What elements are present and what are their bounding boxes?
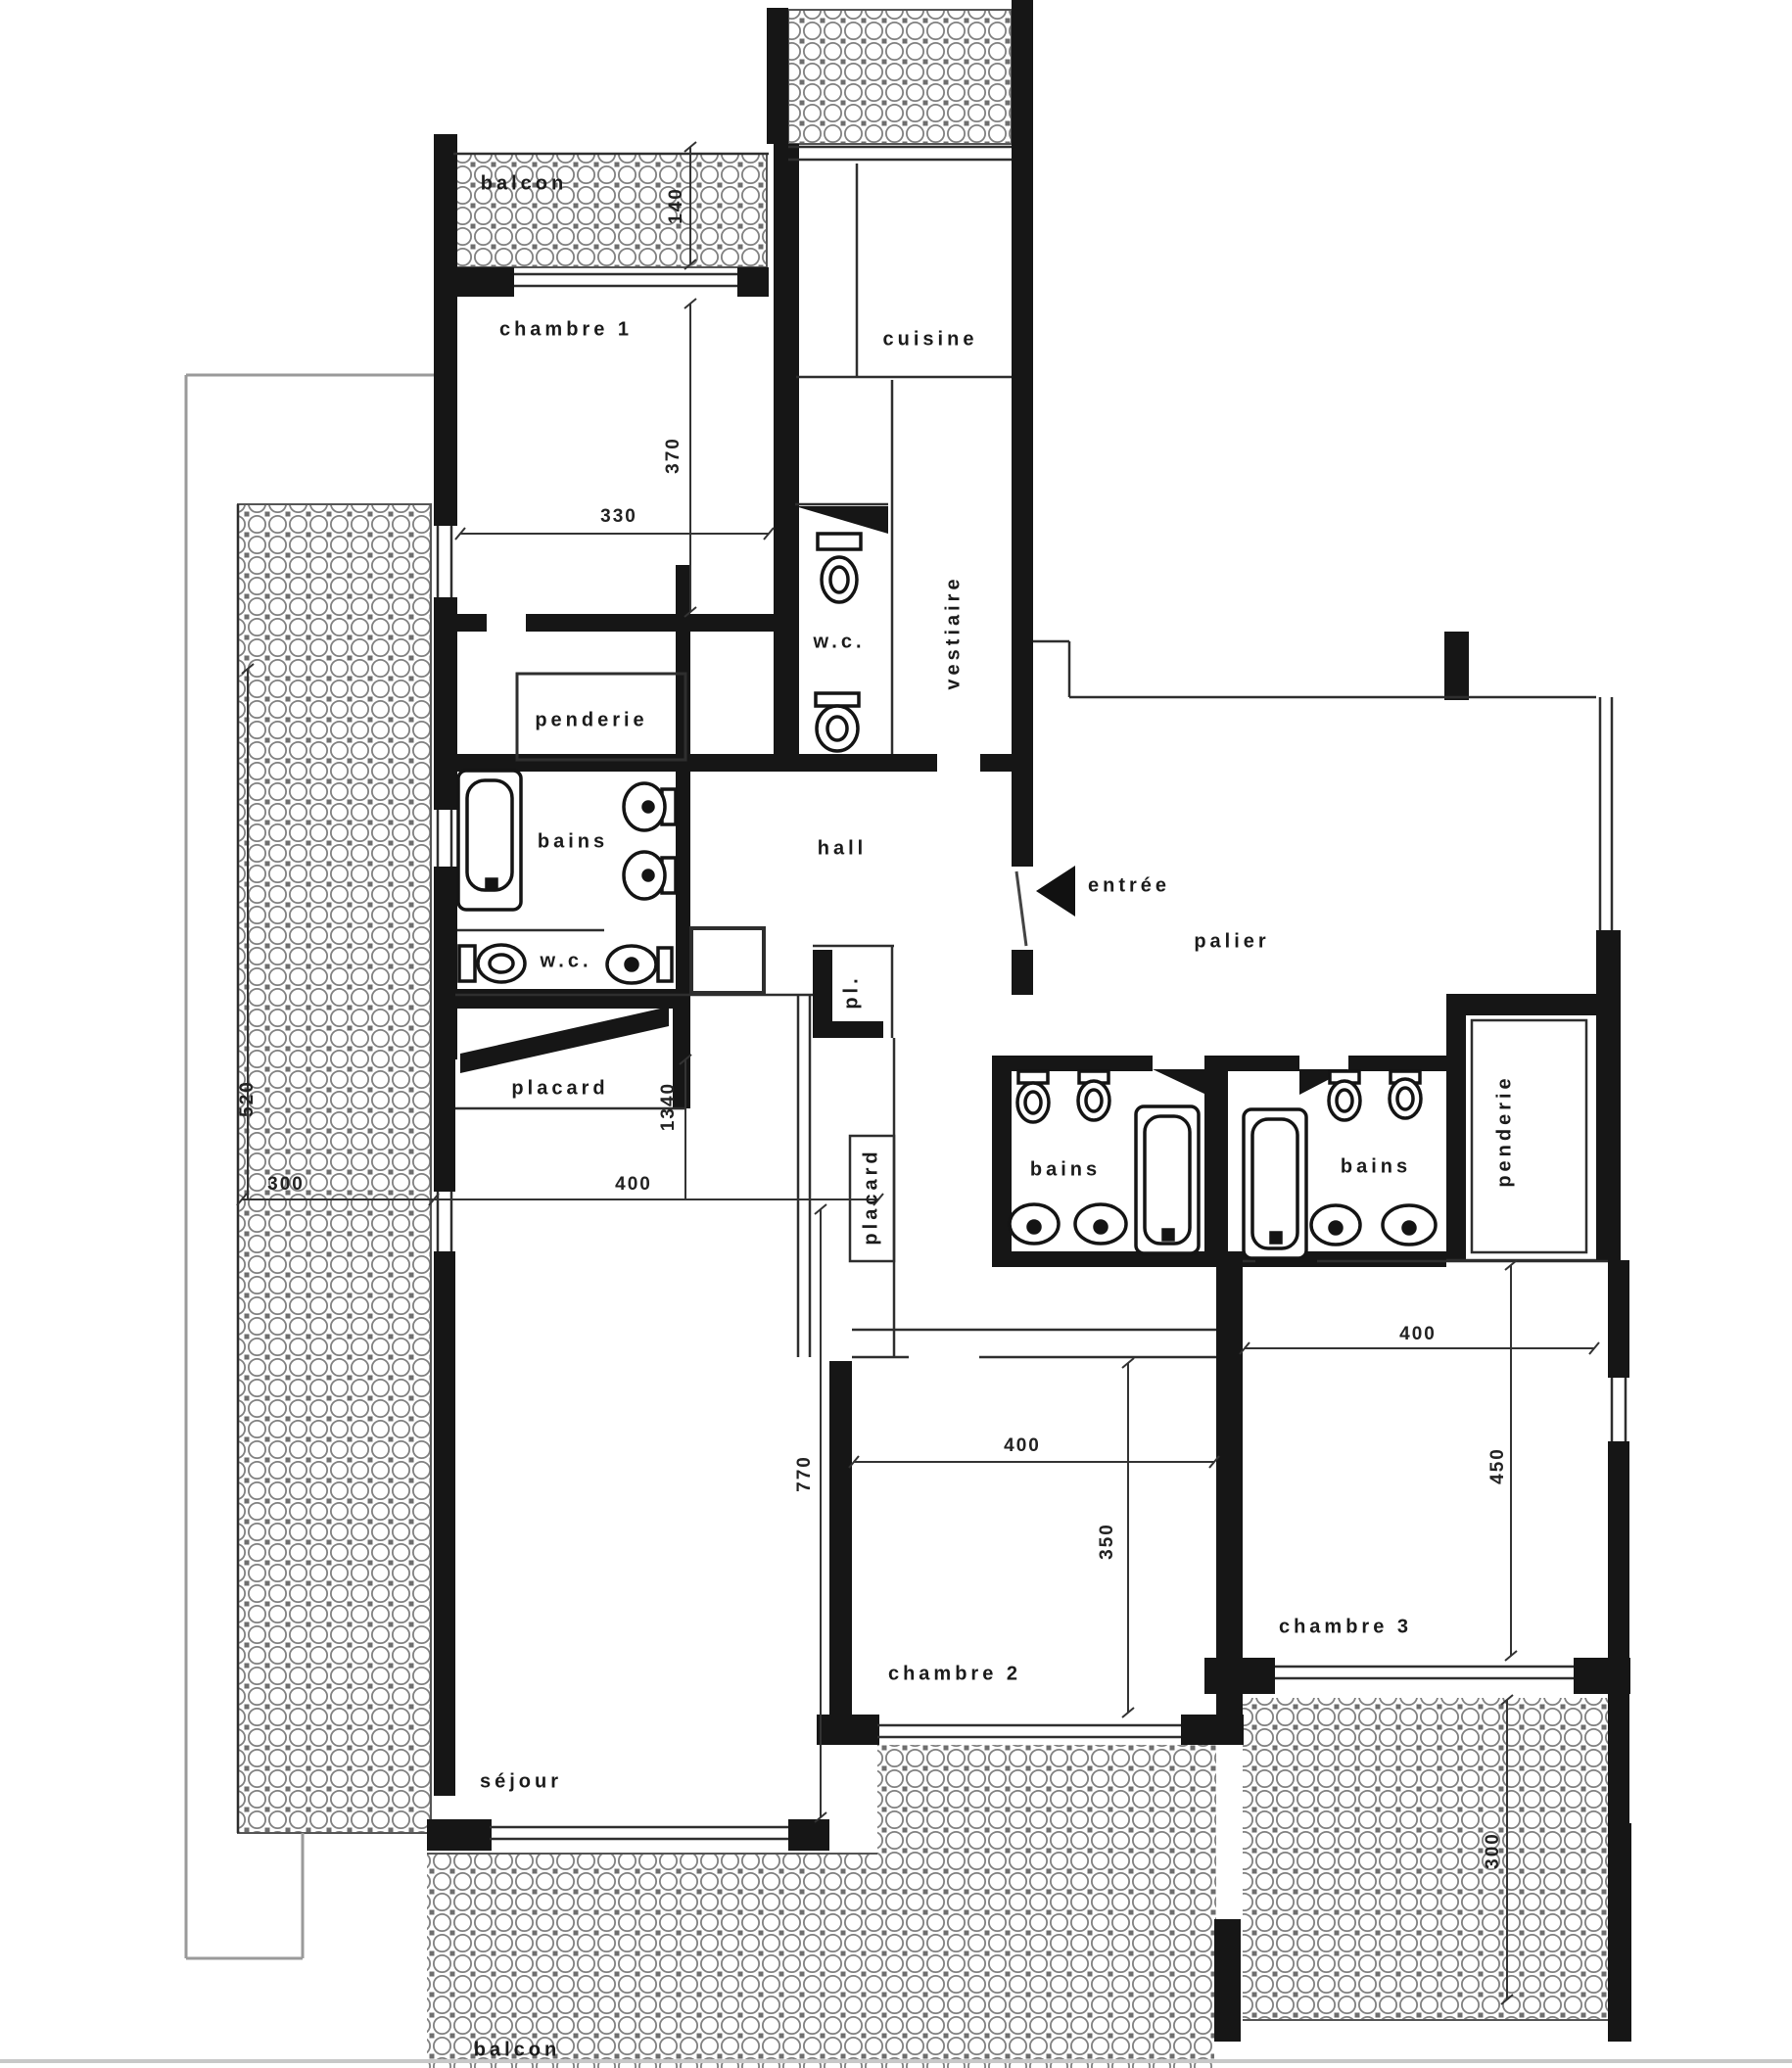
balcony-top-left-hatch xyxy=(453,154,767,267)
room-label-cuisine: cuisine xyxy=(883,329,978,352)
room-label-entree: entrée xyxy=(1088,875,1170,898)
room-label-chambre-1: chambre 1 xyxy=(499,319,633,342)
dim-label-370: 370 xyxy=(663,437,684,474)
balcony-bottom-hatch xyxy=(427,1698,1608,2068)
room-label-vestiaire: vestiaire xyxy=(943,575,966,689)
bidet-icon xyxy=(607,946,672,983)
room-label-wc-left: w.c. xyxy=(540,951,591,973)
dim-label-450: 450 xyxy=(1487,1447,1509,1484)
toilet-icon xyxy=(1017,1071,1049,1122)
bathtub-icon xyxy=(1136,1106,1199,1253)
room-label-penderie-left: penderie xyxy=(535,710,647,732)
washbasin-icon xyxy=(624,852,676,899)
room-label-palier: palier xyxy=(1194,931,1269,954)
room-label-wc-top: w.c. xyxy=(813,632,865,654)
dim-label-330: 330 xyxy=(600,506,637,528)
room-label-chambre-3: chambre 3 xyxy=(1279,1617,1412,1639)
washbasin-icon xyxy=(1383,1205,1436,1245)
plan-drawing xyxy=(0,0,1792,2068)
toilet-icon xyxy=(1078,1071,1109,1120)
room-label-penderie-right: penderie xyxy=(1494,1074,1517,1187)
entree-arrow-icon xyxy=(1036,866,1075,916)
dim-label-400-ch2: 400 xyxy=(1004,1435,1041,1457)
room-label-placard-v: placard xyxy=(861,1148,883,1245)
entrance-door-leaf xyxy=(1016,871,1026,946)
dim-label-400-ch3: 400 xyxy=(1399,1324,1437,1345)
dim-label-300-balcony: 300 xyxy=(1483,1832,1504,1869)
washbasin-icon xyxy=(1075,1204,1126,1244)
room-label-hall: hall xyxy=(818,838,867,861)
toilet-icon xyxy=(818,534,861,602)
room-label-pl: pl. xyxy=(841,974,864,1009)
room-label-bains-left: bains xyxy=(538,831,608,854)
room-label-chambre-2: chambre 2 xyxy=(888,1664,1021,1686)
room-label-placard-h: placard xyxy=(511,1078,608,1101)
washbasin-icon xyxy=(1311,1205,1360,1245)
dim-label-300-terrace: 300 xyxy=(267,1174,305,1196)
room-label-bains-middle: bains xyxy=(1030,1159,1101,1182)
room-label-balcon-bottom: balcon xyxy=(474,2040,560,2062)
room-label-sejour: séjour xyxy=(480,1771,562,1794)
dim-label-140: 140 xyxy=(666,187,687,224)
bathtub-icon xyxy=(1244,1109,1306,1258)
dim-label-350: 350 xyxy=(1097,1523,1118,1560)
toilet-icon xyxy=(1390,1071,1421,1118)
dim-label-400-sejour: 400 xyxy=(615,1174,652,1196)
toilet-icon xyxy=(459,945,525,982)
washbasin-icon xyxy=(624,783,676,830)
room-label-bains-right: bains xyxy=(1341,1156,1411,1179)
floor-plan: balcon chambre 1 cuisine w.c. vestiaire … xyxy=(0,0,1792,2068)
dim-label-770: 770 xyxy=(794,1455,816,1492)
terrace-left-hatch xyxy=(238,504,431,1833)
bathtub-icon xyxy=(458,771,521,910)
washbasin-icon xyxy=(1010,1204,1059,1244)
dim-label-terrace-v: 520 xyxy=(237,1080,259,1117)
room-label-balcon-top: balcon xyxy=(481,173,567,196)
bidet-icon xyxy=(816,693,859,751)
balcony-top-center-hatch xyxy=(788,10,1012,144)
toilet-icon xyxy=(1329,1071,1360,1120)
dim-label-1340: 1340 xyxy=(658,1082,680,1131)
